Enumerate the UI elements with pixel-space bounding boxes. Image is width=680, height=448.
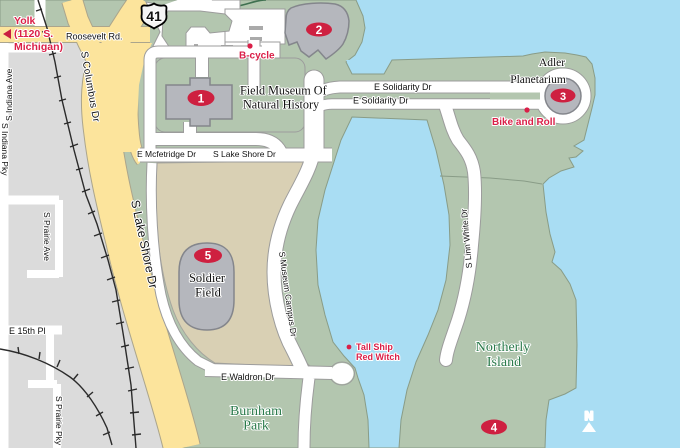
svg-text:Island: Island xyxy=(487,355,521,370)
svg-text:S Prairie Ave: S Prairie Ave xyxy=(42,212,52,261)
svg-text:Soldier: Soldier xyxy=(189,271,226,285)
svg-text:S Prairie Pky: S Prairie Pky xyxy=(54,396,64,446)
svg-text:Northerly: Northerly xyxy=(476,340,530,355)
svg-text:B-cycle: B-cycle xyxy=(239,51,275,62)
svg-text:5: 5 xyxy=(205,251,212,263)
svg-text:E Mcfetridge Dr: E Mcfetridge Dr xyxy=(137,149,196,159)
svg-text:2: 2 xyxy=(316,23,323,37)
svg-text:Park: Park xyxy=(243,419,269,434)
svg-text:Adler: Adler xyxy=(539,57,565,69)
svg-text:S Indiana Pky: S Indiana Pky xyxy=(0,123,10,176)
svg-text:Field: Field xyxy=(195,286,221,300)
svg-text:Michigan): Michigan) xyxy=(14,41,63,53)
svg-text:1: 1 xyxy=(198,92,205,106)
svg-text:S Indiana Ave: S Indiana Ave xyxy=(4,68,14,121)
svg-text:Roosevelt Rd.: Roosevelt Rd. xyxy=(66,32,123,42)
svg-text:Planetarium: Planetarium xyxy=(510,74,566,86)
svg-text:Tall Ship: Tall Ship xyxy=(356,342,393,352)
svg-text:E Soldarity Dr: E Soldarity Dr xyxy=(353,96,409,106)
svg-text:E Solidarity Dr: E Solidarity Dr xyxy=(374,82,432,92)
svg-text:3: 3 xyxy=(560,91,566,103)
svg-text:S Lake Shore Dr: S Lake Shore Dr xyxy=(213,149,276,159)
svg-text:E Waldron Dr: E Waldron Dr xyxy=(221,372,275,382)
svg-text:41: 41 xyxy=(146,8,162,24)
svg-text:Burnham: Burnham xyxy=(230,404,282,419)
svg-text:N: N xyxy=(585,409,594,423)
svg-text:(1120 S.: (1120 S. xyxy=(14,28,53,40)
svg-text:Bike and Roll: Bike and Roll xyxy=(492,117,556,128)
svg-text:Red Witch: Red Witch xyxy=(356,352,400,362)
svg-text:4: 4 xyxy=(491,423,498,435)
svg-text:Field Museum Of: Field Museum Of xyxy=(240,84,328,98)
svg-text:Yolk: Yolk xyxy=(14,15,36,27)
svg-text:Natural History: Natural History xyxy=(243,98,320,112)
svg-text:E 15th Pl: E 15th Pl xyxy=(9,326,46,336)
